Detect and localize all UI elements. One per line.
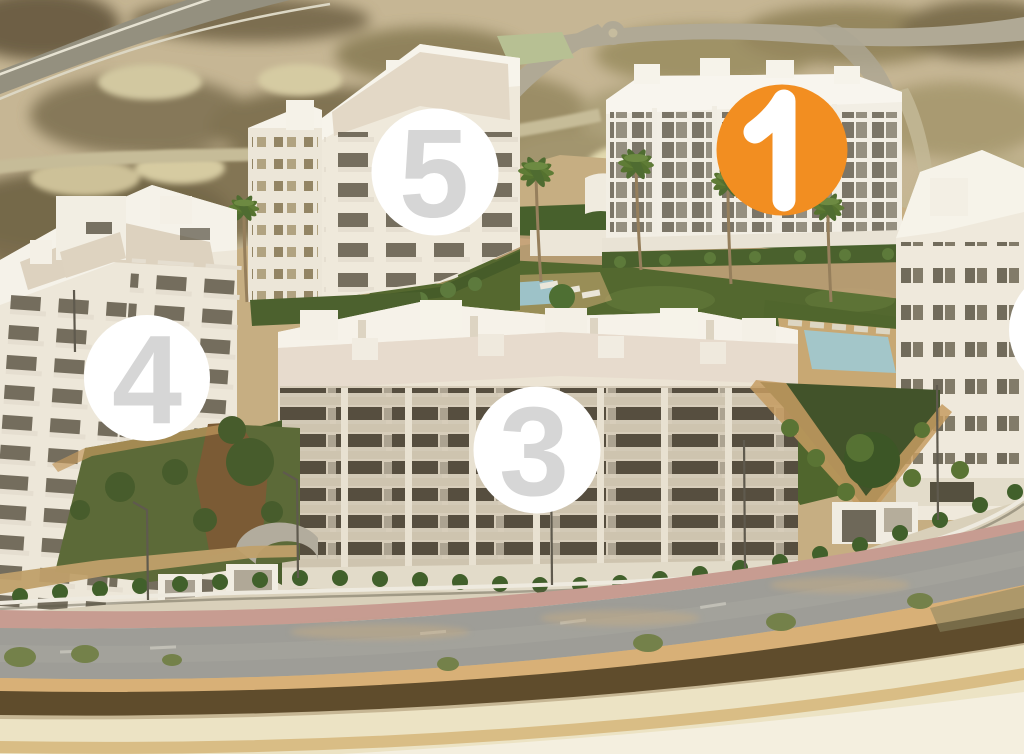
svg-text:5: 5 (399, 103, 469, 244)
svg-text:4: 4 (112, 309, 182, 450)
svg-text:3: 3 (499, 381, 569, 522)
